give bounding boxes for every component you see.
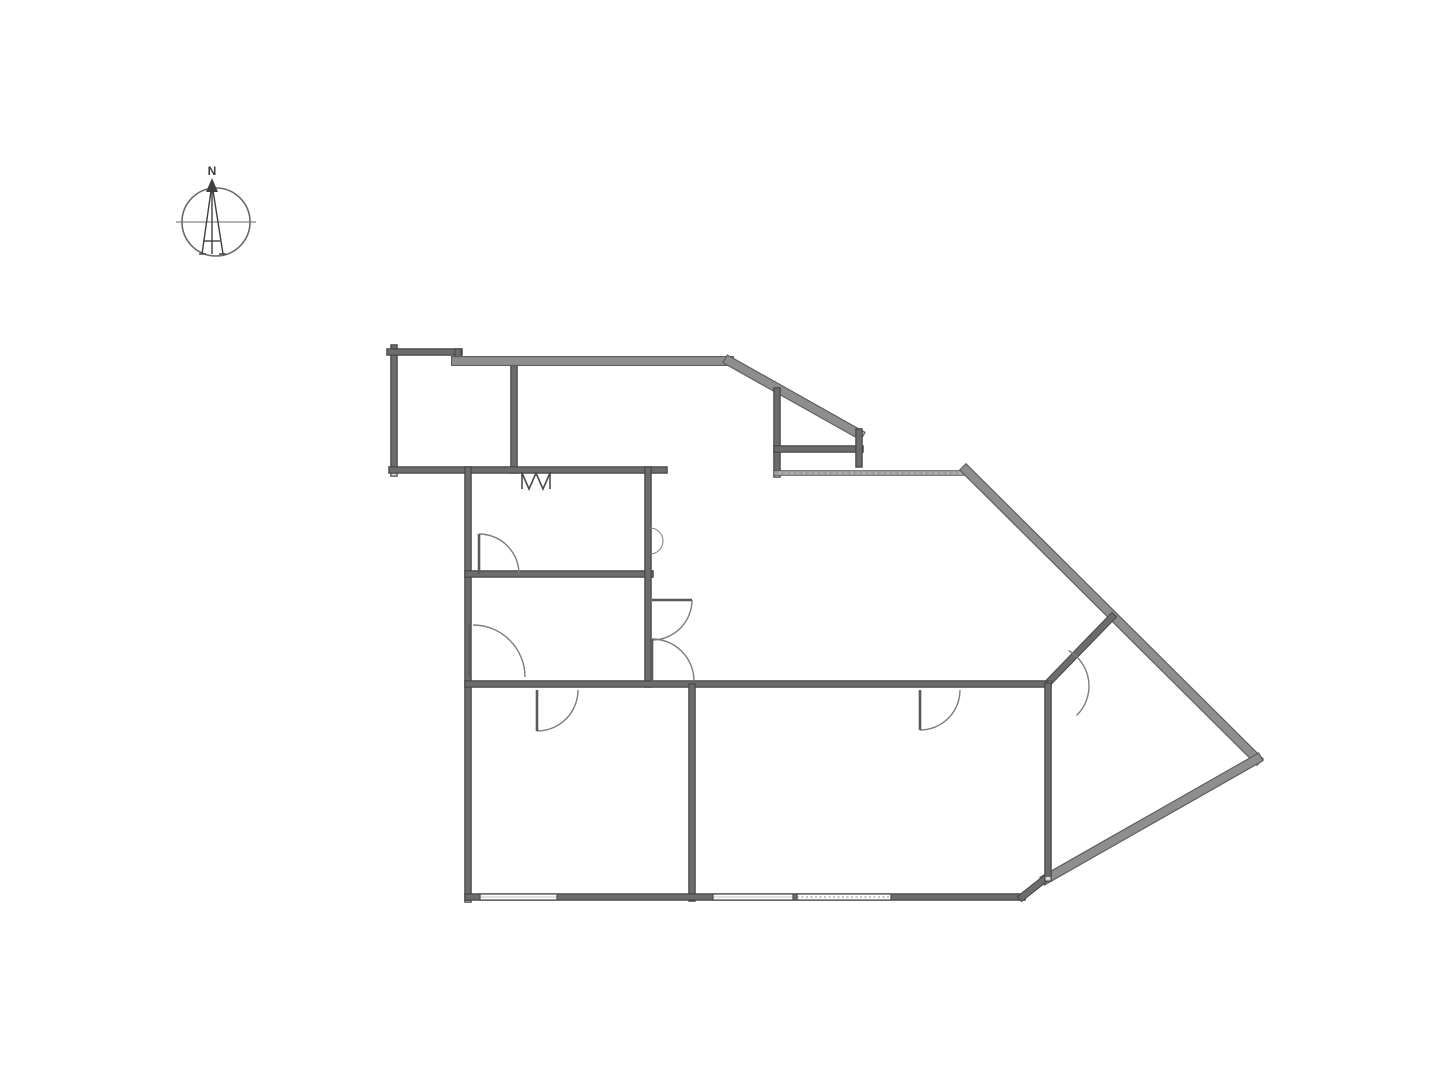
- walls-layer: [390, 348, 1257, 899]
- compass-needle-0: [202, 184, 212, 254]
- door-left-lower-arc: [473, 625, 525, 677]
- floorplan-page: N: [0, 0, 1440, 1080]
- door-midleft-room-arc: [479, 534, 519, 574]
- symbols-layer: [522, 472, 550, 489]
- door-hall-upper-arc: [652, 600, 692, 640]
- compass: N: [176, 164, 256, 256]
- folding-door-symbol-1: [522, 473, 550, 489]
- upper-diagonal-wall-hatch: [729, 361, 859, 434]
- doors-layer: [470, 528, 1089, 731]
- floorplan-canvas: N: [0, 0, 1440, 1080]
- southeast-diagonal-hatch: [1046, 759, 1257, 879]
- door-bottomleft-room-arc: [537, 690, 578, 731]
- compass-needle-apex: [206, 178, 218, 192]
- compass-needle-1: [212, 184, 223, 254]
- door-bottommid-room-arc: [920, 690, 960, 730]
- compass-north-label: N: [208, 164, 217, 178]
- bottom-corner-diagonal-hatch: [1022, 878, 1046, 897]
- wall-notch-arc-arc: [650, 528, 663, 554]
- door-hall-lower-arc: [652, 639, 694, 681]
- interior-diagonal-hatch: [1047, 617, 1112, 684]
